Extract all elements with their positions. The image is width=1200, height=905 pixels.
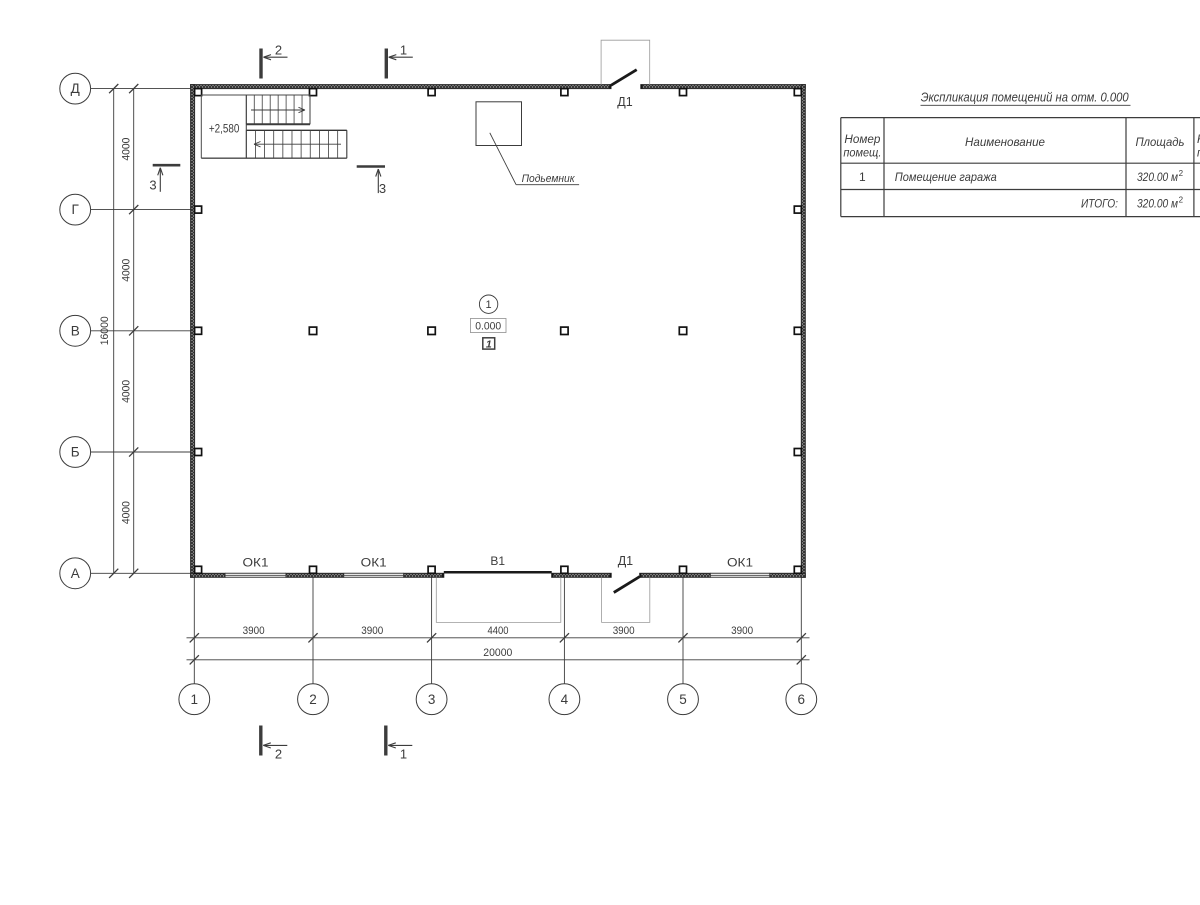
svg-text:4000: 4000 — [121, 380, 133, 403]
svg-text:Б: Б — [71, 445, 80, 460]
svg-text:1: 1 — [400, 747, 407, 762]
svg-text:3: 3 — [379, 181, 386, 196]
svg-text:1: 1 — [191, 692, 199, 707]
svg-text:Г: Г — [72, 202, 80, 217]
svg-text:3900: 3900 — [613, 625, 635, 637]
svg-text:320.00 м: 320.00 м — [1137, 197, 1178, 211]
svg-text:16000: 16000 — [99, 316, 111, 345]
svg-text:3900: 3900 — [731, 625, 753, 637]
svg-text:Д1: Д1 — [618, 554, 633, 568]
svg-text:помещ.: помещ. — [843, 148, 881, 160]
svg-text:4: 4 — [561, 692, 569, 707]
svg-text:Д1: Д1 — [617, 95, 632, 109]
svg-text:0.000: 0.000 — [475, 320, 501, 332]
svg-text:Площадь: Площадь — [1135, 135, 1184, 149]
svg-text:3900: 3900 — [361, 625, 383, 637]
svg-text:4000: 4000 — [121, 259, 133, 282]
svg-text:2: 2 — [275, 747, 282, 762]
svg-text:3: 3 — [149, 178, 156, 193]
svg-text:2: 2 — [1179, 195, 1184, 204]
svg-text:ОК1: ОК1 — [361, 557, 387, 569]
svg-text:2: 2 — [275, 43, 282, 58]
svg-text:3900: 3900 — [243, 625, 265, 637]
svg-text:Помещение гаража: Помещение гаража — [895, 170, 997, 184]
svg-text:6: 6 — [798, 692, 806, 707]
svg-text:Номер: Номер — [844, 134, 881, 146]
svg-text:2: 2 — [1179, 169, 1184, 178]
svg-text:20000: 20000 — [483, 647, 512, 659]
svg-text:4000: 4000 — [121, 138, 133, 161]
svg-text:1: 1 — [486, 338, 492, 350]
svg-text:В1: В1 — [490, 554, 505, 568]
svg-text:4000: 4000 — [121, 501, 133, 524]
svg-text:320.00 м: 320.00 м — [1137, 170, 1178, 184]
svg-text:1: 1 — [486, 299, 492, 311]
svg-text:5: 5 — [679, 692, 687, 707]
svg-text:1: 1 — [400, 43, 407, 58]
svg-text:А: А — [71, 566, 80, 581]
svg-text:Подьемник: Подьемник — [522, 173, 576, 185]
svg-text:1: 1 — [859, 170, 866, 184]
svg-text:ОК1: ОК1 — [727, 557, 753, 569]
svg-text:Д: Д — [71, 81, 80, 96]
svg-text:+2,580: +2,580 — [209, 123, 240, 135]
svg-text:В: В — [71, 323, 80, 338]
svg-text:2: 2 — [309, 692, 317, 707]
svg-text:Экспликация помещений на отм.: Экспликация помещений на отм. 0.000 — [921, 90, 1130, 105]
svg-text:ИТОГО:: ИТОГО: — [1081, 197, 1118, 211]
svg-text:Наименование: Наименование — [965, 135, 1045, 149]
svg-text:4400: 4400 — [488, 625, 509, 637]
svg-text:3: 3 — [428, 692, 436, 707]
svg-text:ОК1: ОК1 — [243, 557, 269, 569]
